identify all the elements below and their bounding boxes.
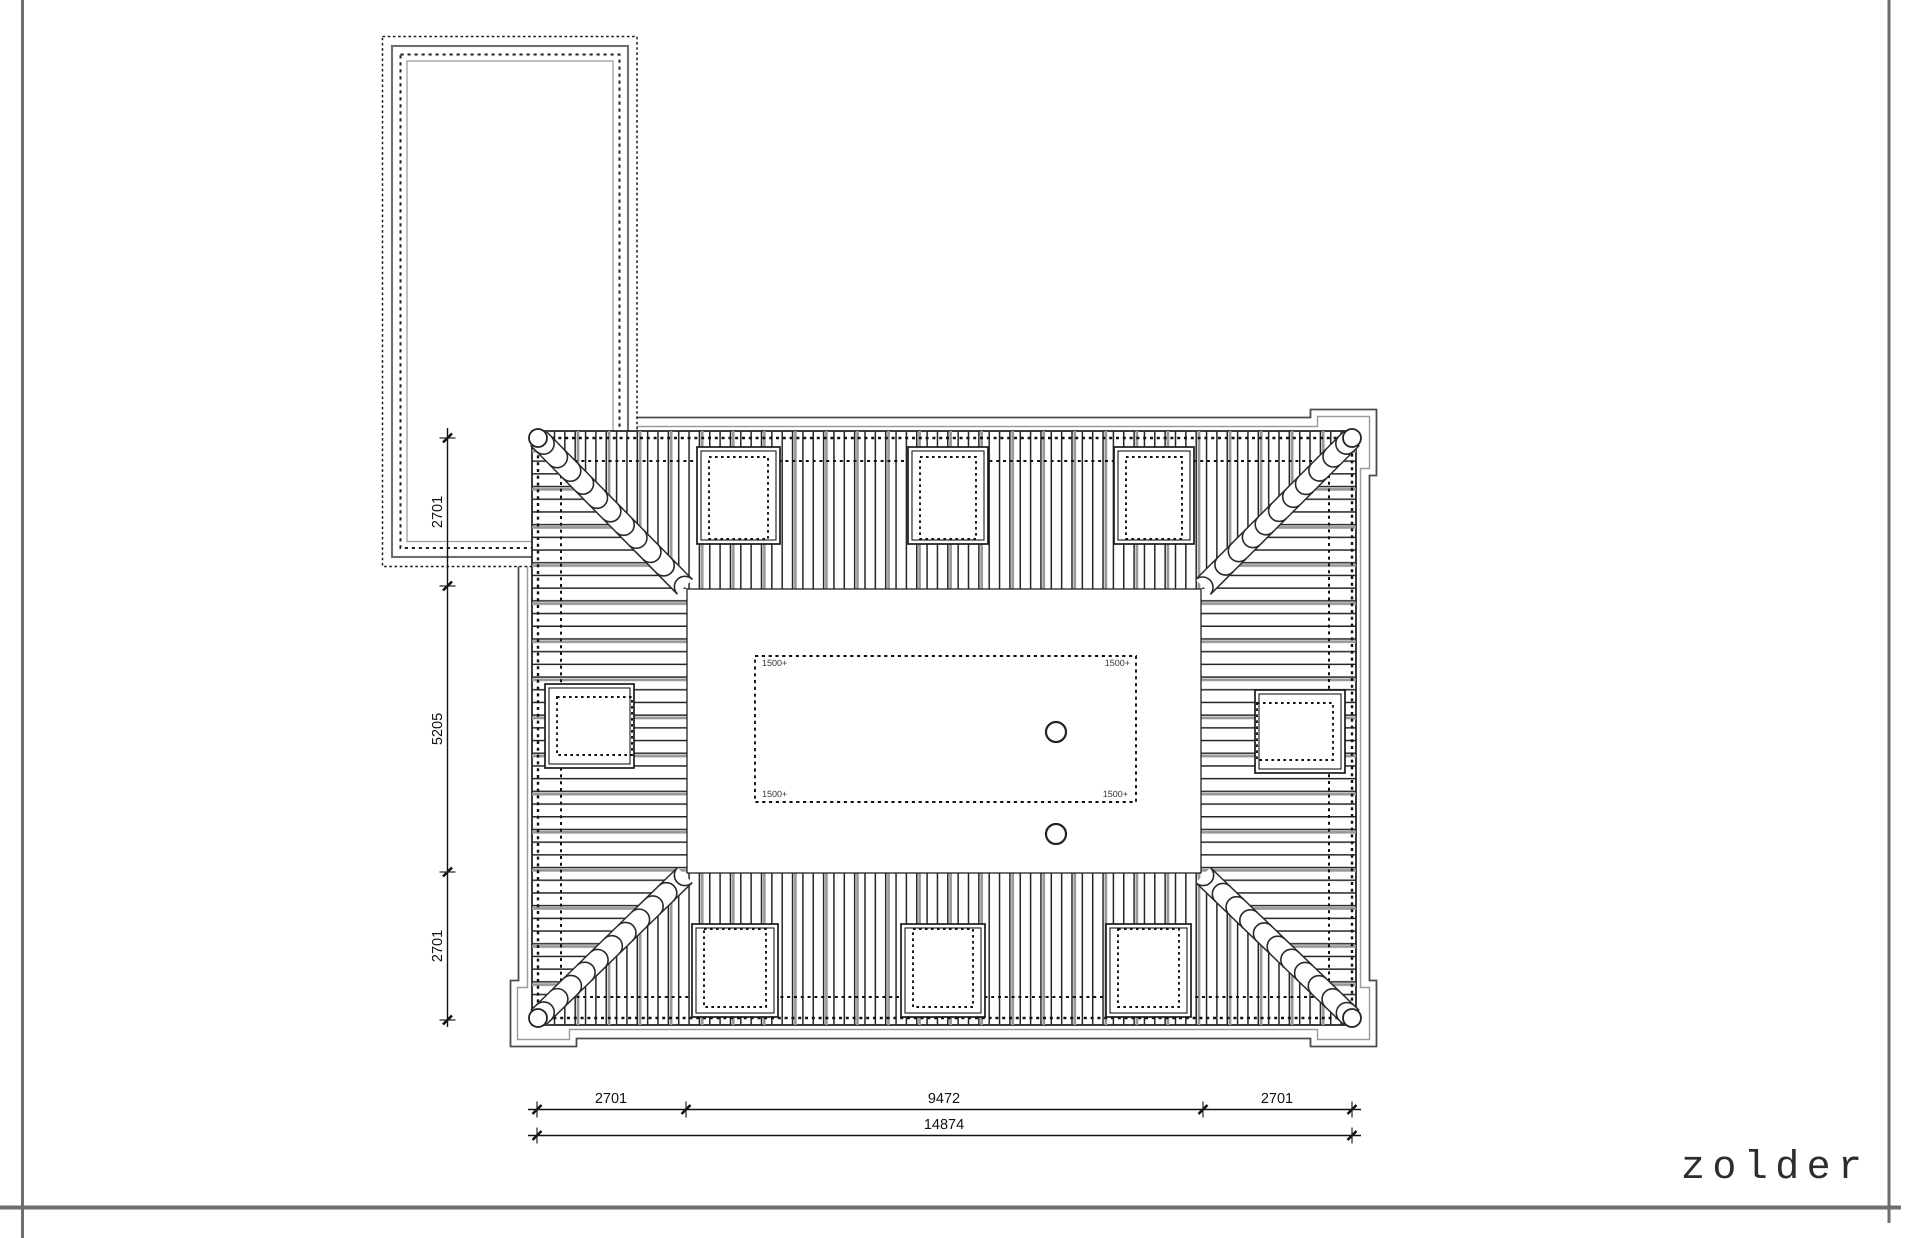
svg-text:1500+: 1500+ — [762, 658, 787, 668]
svg-text:2701: 2701 — [430, 496, 446, 528]
svg-text:9472: 9472 — [928, 1091, 960, 1107]
svg-text:2701: 2701 — [430, 930, 446, 962]
svg-text:1500+: 1500+ — [762, 789, 787, 799]
svg-text:14874: 14874 — [924, 1117, 964, 1133]
svg-text:5205: 5205 — [430, 713, 446, 745]
svg-text:2701: 2701 — [1261, 1091, 1293, 1107]
svg-text:1500+: 1500+ — [1105, 658, 1130, 668]
svg-text:1500+: 1500+ — [1103, 789, 1128, 799]
svg-text:2701: 2701 — [595, 1091, 627, 1107]
svg-text:zolder: zolder — [1681, 1146, 1869, 1191]
